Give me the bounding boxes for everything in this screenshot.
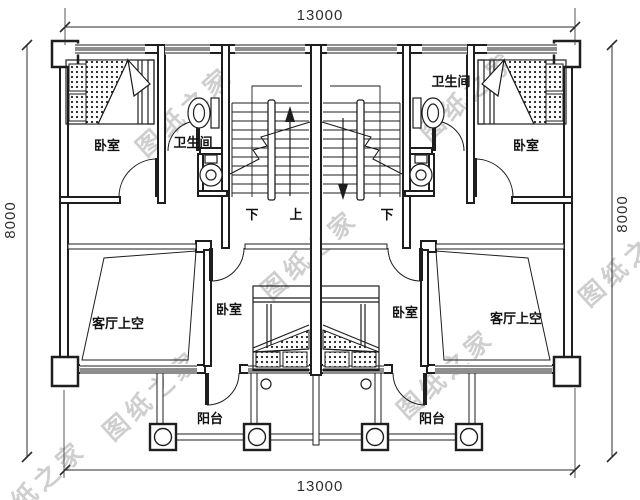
label-living-left: 客厅上空 — [92, 316, 144, 331]
label-bathroom-left: 卫生间 — [173, 135, 212, 150]
label-bedroom-bottom-left: 卧室 — [216, 302, 242, 317]
label-balcony-left: 阳台 — [197, 411, 223, 426]
floor-plan-svg: 图纸之家 图纸之家 图纸之家 图纸之家 图纸之家 图纸之家 图纸之家 13000… — [0, 0, 640, 500]
label-stair-down-left: 下 — [245, 207, 258, 222]
party-wall — [311, 45, 321, 375]
label-bedroom-top-right: 卧室 — [513, 138, 539, 153]
label-stair-up-left: 上 — [289, 207, 302, 222]
label-bathroom-right: 卫生间 — [431, 74, 470, 89]
label-bedroom-bottom-right: 卧室 — [392, 305, 418, 320]
dim-top: 13000 — [297, 7, 344, 24]
dim-left: 8000 — [2, 201, 19, 238]
watermark-text: 图纸之家 — [0, 435, 92, 500]
dim-right: 8000 — [614, 195, 631, 232]
label-balcony-right: 阳台 — [419, 411, 445, 426]
label-living-right: 客厅上空 — [490, 311, 542, 326]
label-stair-down-right: 下 — [380, 207, 393, 222]
floor-plan-page: 图纸之家 图纸之家 图纸之家 图纸之家 图纸之家 图纸之家 图纸之家 13000… — [0, 0, 640, 500]
label-bedroom-top-left: 卧室 — [94, 138, 120, 153]
watermark-text: 图纸之家 — [255, 204, 364, 306]
dim-bottom: 13000 — [297, 478, 344, 495]
